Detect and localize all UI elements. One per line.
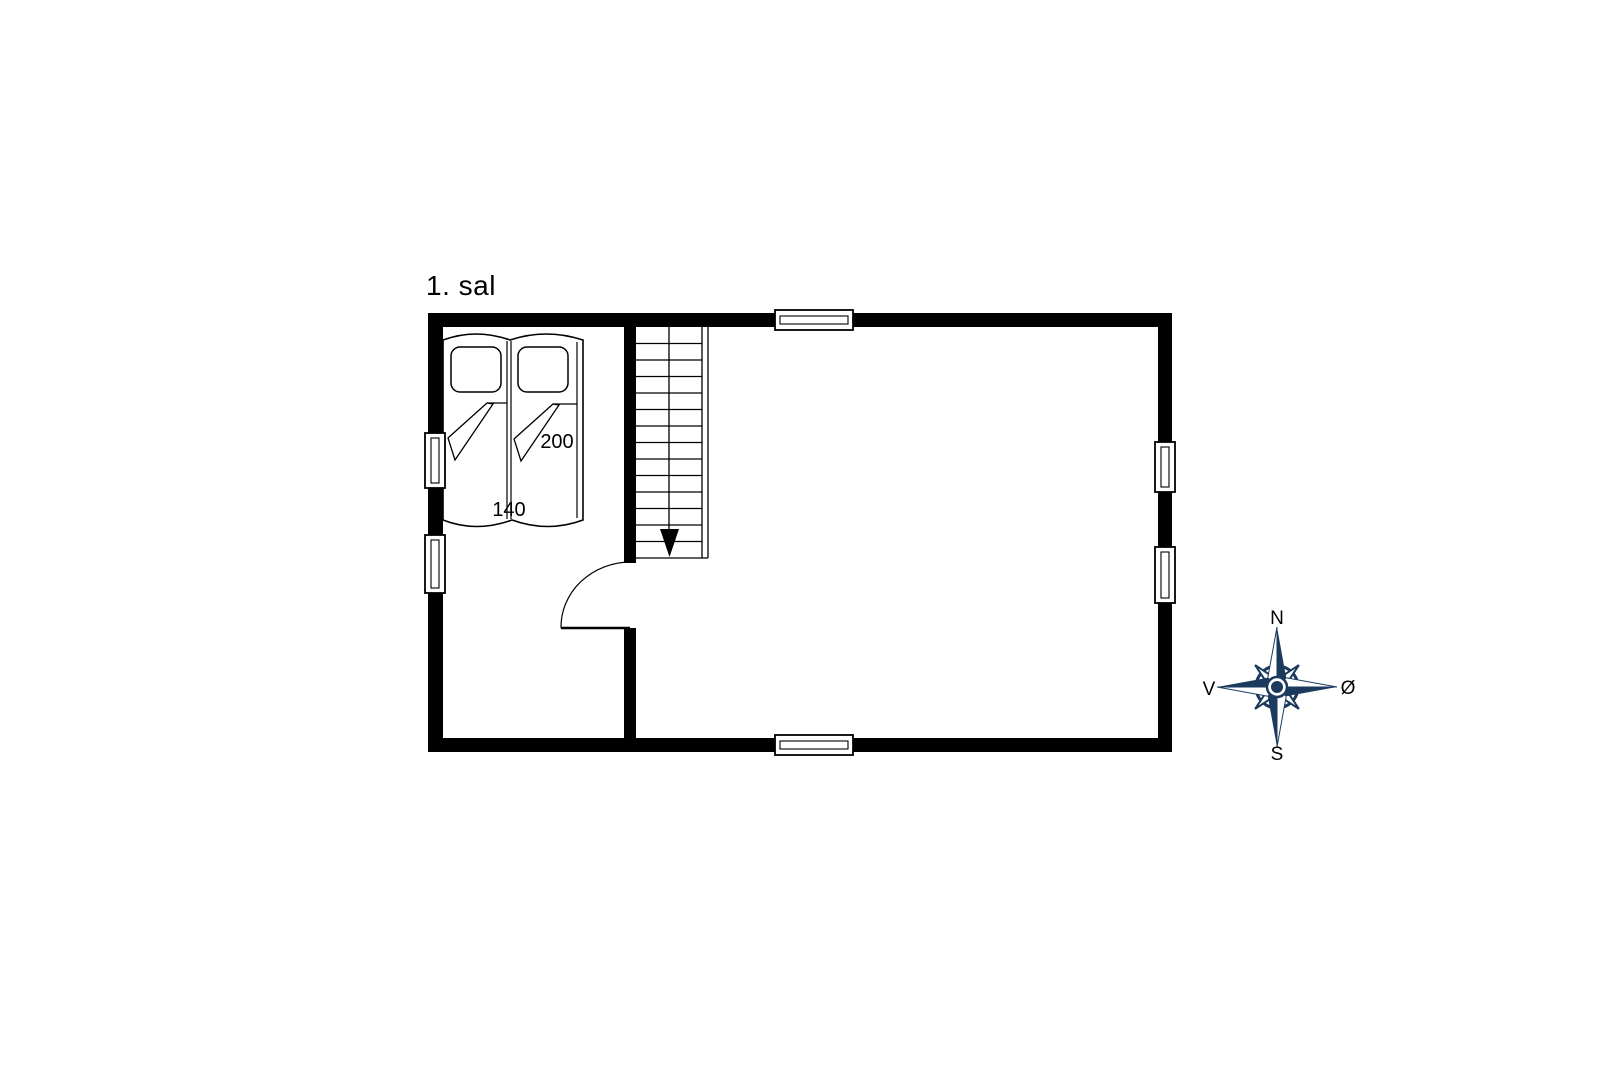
- window-left-lower: [425, 535, 445, 593]
- compass-rose-icon: N S V Ø: [1203, 608, 1356, 765]
- window-top: [775, 310, 853, 330]
- compass-hub-dot: [1271, 681, 1283, 693]
- bed-length-label: 200: [540, 431, 573, 453]
- window-right-upper: [1155, 442, 1175, 492]
- double-bed: 200 140: [443, 334, 583, 527]
- window-right-lower: [1155, 547, 1175, 603]
- door: [561, 562, 630, 628]
- door-swing-arc: [561, 562, 630, 628]
- interior-wall-upper: [624, 327, 636, 563]
- interior-wall-lower: [624, 628, 636, 738]
- compass-label-west: V: [1203, 679, 1216, 700]
- floor-plan: 200 140: [425, 310, 1175, 755]
- bed-width-label: 140: [492, 499, 525, 521]
- window-bottom: [775, 735, 853, 755]
- pillow-right: [518, 347, 568, 392]
- stairs: [636, 327, 708, 558]
- window-left-upper: [425, 433, 445, 488]
- compass-label-east: Ø: [1341, 678, 1356, 699]
- pillow-left: [451, 347, 501, 392]
- floorplan-canvas: 200 140: [0, 0, 1600, 1066]
- page: 1. sal: [0, 0, 1600, 1066]
- compass-label-north: N: [1270, 608, 1284, 629]
- compass-label-south: S: [1271, 744, 1284, 765]
- stairs-down-arrow-icon: [660, 529, 679, 557]
